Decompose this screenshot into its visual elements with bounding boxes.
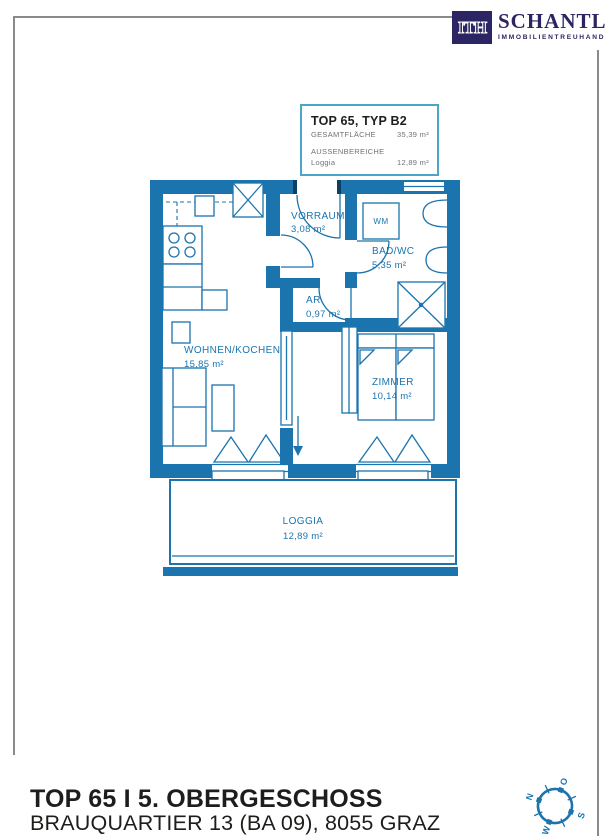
window-opening-icon [359, 437, 394, 462]
room-area-vorraum: 3,08 m² [291, 224, 325, 235]
bedroom-furniture [342, 327, 434, 420]
shower-drain [419, 303, 423, 307]
room-area-loggia: 12,89 m² [283, 531, 323, 542]
room-label-loggia: LOGGIA [283, 516, 324, 527]
room-label-vorraum: VORRAUM [291, 211, 345, 222]
wall-bottom-b [288, 464, 356, 478]
footer-block: TOP 65 I 5. OBERGESCHOSS BRAUQUARTIER 13… [30, 786, 440, 835]
entrance-jamb-left [293, 180, 297, 194]
room-area-zimmer: 10,14 m² [372, 391, 412, 402]
compass-east-label: O [558, 777, 570, 787]
wall-vorraum-left-lower [266, 266, 280, 288]
wall-ar-top-stub [350, 278, 357, 288]
window-opening-icon [395, 435, 430, 462]
wall-ar-top [280, 278, 320, 288]
compass-west-label: W [540, 824, 552, 836]
window-sill [212, 471, 284, 480]
toilet [426, 247, 447, 273]
compass-ring [533, 784, 577, 828]
room-label-bad: BAD/WC [372, 246, 414, 257]
loggia-bottom-band [163, 567, 458, 576]
washing-machine-label: WM [373, 217, 388, 226]
coffee-table [212, 385, 234, 431]
washbasin [423, 200, 447, 227]
room-area-wohnen: 15,85 m² [184, 359, 224, 370]
window-opening-icon [214, 437, 248, 462]
window-sill [358, 471, 428, 480]
room-label-zimmer: ZIMMER [372, 377, 414, 388]
stove-unit [163, 226, 202, 264]
wall-divider-upper [280, 284, 293, 326]
chair [202, 290, 227, 310]
room-area-bad: 5,35 m² [372, 260, 406, 271]
kitchen-sink [195, 196, 214, 216]
floorplan-drawing: WM VORRAUM [0, 0, 611, 836]
footer-address: BRAUQUARTIER 13 (BA 09), 8055 GRAZ [30, 812, 440, 835]
window-opening-icon [249, 435, 284, 462]
loggia [163, 480, 458, 576]
wall-left [150, 180, 163, 478]
footer-title: TOP 65 I 5. OBERGESCHOSS [30, 786, 440, 812]
wall-bad-left-upper [345, 194, 357, 240]
living-door-swing [281, 235, 313, 267]
floorplan-page: ITH SCHANTL IMMOBILIENTREUHAND TOP 65, T… [0, 0, 611, 836]
compass-icon: N O S W [515, 767, 597, 836]
room-label-ar: AR [306, 295, 321, 306]
wall-bottom-c [431, 464, 460, 478]
compass-north-label: N [524, 792, 536, 802]
chair [172, 322, 190, 343]
compass-south-label: S [576, 811, 587, 820]
slide-arrow-head [293, 446, 303, 456]
room-label-wohnen: WOHNEN/KOCHEN [184, 345, 280, 356]
wall-top-left [150, 180, 297, 194]
wall-bottom-a [150, 464, 212, 478]
wall-vorraum-left-upper [266, 194, 280, 236]
entrance-jamb-right [337, 180, 341, 194]
room-area-ar: 0,97 m² [306, 309, 340, 320]
